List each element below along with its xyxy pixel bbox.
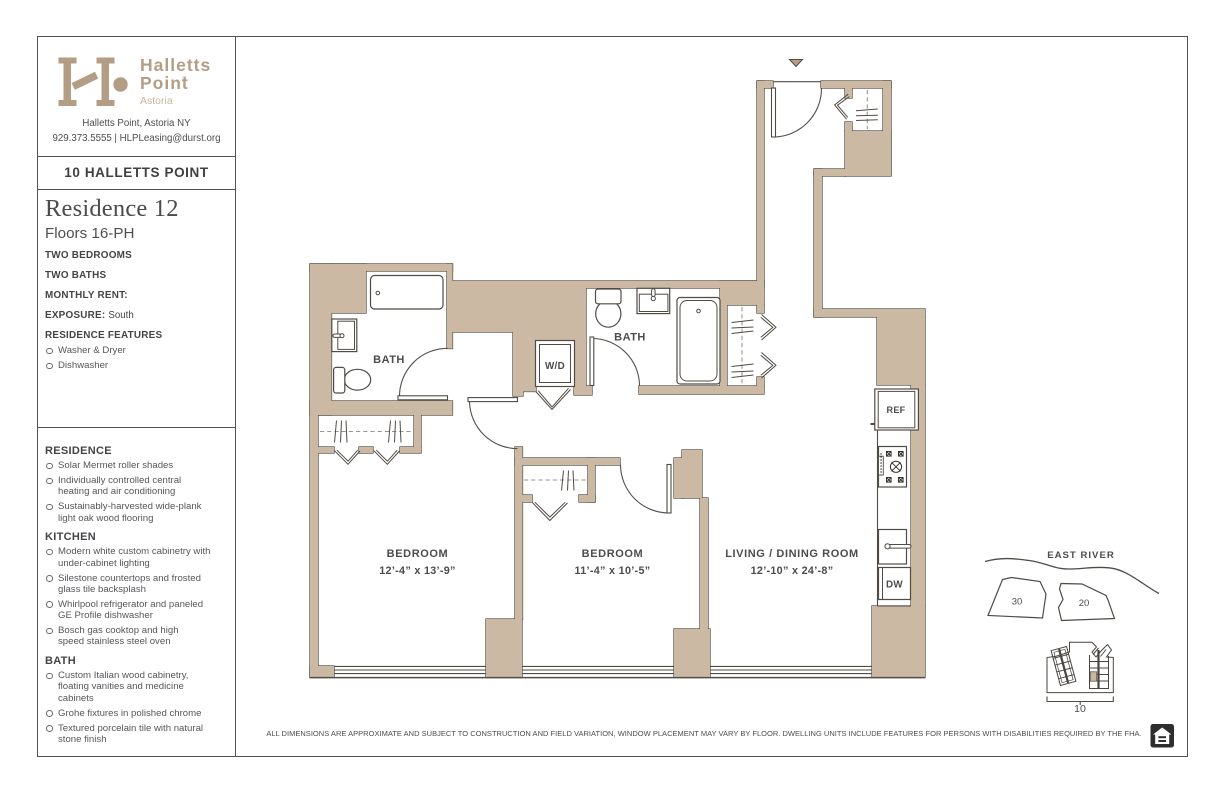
svg-text:12’-10” x 24’-8”: 12’-10” x 24’-8” bbox=[751, 565, 834, 577]
svg-text:20: 20 bbox=[1079, 598, 1090, 609]
svg-text:BEDROOM: BEDROOM bbox=[582, 548, 644, 560]
svg-text:ALL DIMENSIONS ARE APPROXIMATE: ALL DIMENSIONS ARE APPROXIMATE AND SUBJE… bbox=[266, 729, 1141, 738]
svg-text:DW: DW bbox=[886, 580, 903, 591]
svg-text:11’-4” x 10’-5”: 11’-4” x 10’-5” bbox=[575, 565, 651, 577]
svg-text:BATH: BATH bbox=[614, 332, 646, 344]
svg-text:BATH: BATH bbox=[373, 354, 405, 366]
svg-text:12’-4” x 13’-9”: 12’-4” x 13’-9” bbox=[379, 565, 456, 577]
svg-text:EAST RIVER: EAST RIVER bbox=[1047, 550, 1115, 561]
svg-text:BEDROOM: BEDROOM bbox=[387, 548, 449, 560]
svg-text:LIVING / DINING ROOM: LIVING / DINING ROOM bbox=[725, 548, 859, 560]
svg-text:30: 30 bbox=[1012, 597, 1023, 608]
svg-text:W/D: W/D bbox=[545, 361, 565, 372]
svg-text:REF: REF bbox=[887, 405, 906, 415]
